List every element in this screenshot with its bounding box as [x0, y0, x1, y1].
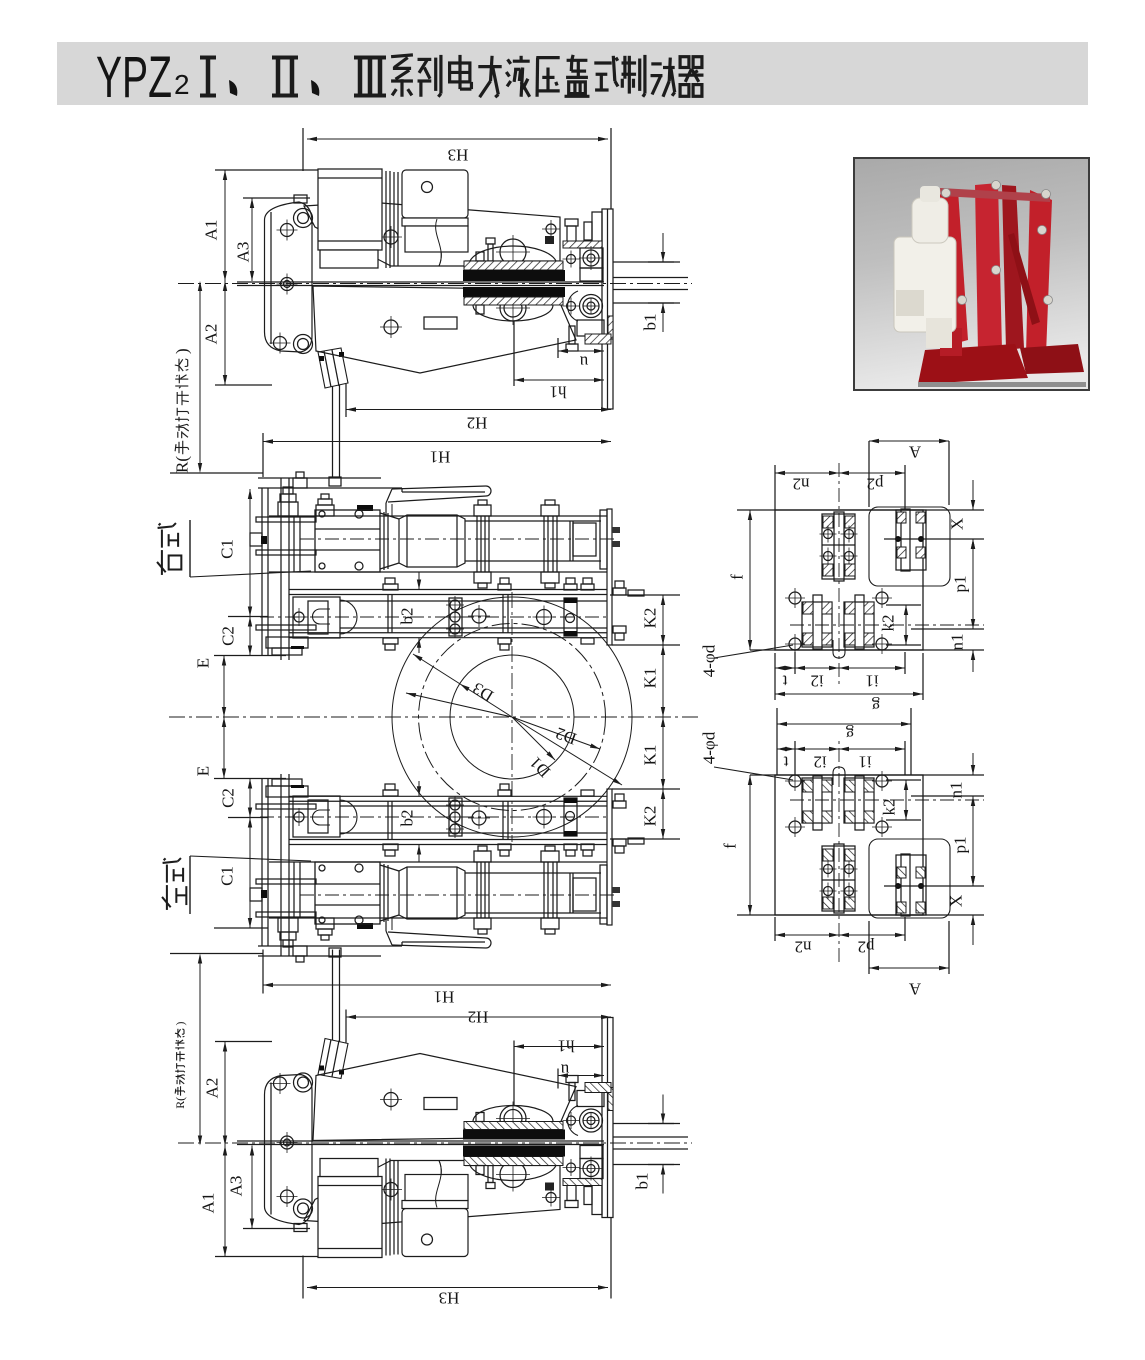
svg-text:b2: b2	[398, 810, 417, 827]
svg-text:n2: n2	[795, 938, 812, 957]
svg-text:A2: A2	[203, 1078, 222, 1099]
svg-text:A3: A3	[234, 242, 253, 263]
svg-text:H2: H2	[467, 414, 488, 433]
svg-text:K2: K2	[641, 806, 660, 827]
svg-text:A2: A2	[202, 324, 221, 345]
svg-text:H3: H3	[439, 1289, 460, 1308]
svg-text:X: X	[948, 518, 967, 530]
svg-text:p2: p2	[867, 475, 884, 494]
svg-text:R(: R(	[173, 1097, 187, 1109]
svg-text:R(: R(	[173, 456, 192, 473]
svg-text:YPZ: YPZ	[96, 45, 172, 110]
svg-text:n2: n2	[793, 475, 810, 494]
svg-text:H2: H2	[468, 1008, 489, 1027]
svg-text:b1: b1	[633, 1173, 652, 1190]
svg-text:i2: i2	[810, 672, 823, 691]
svg-text:p1: p1	[951, 576, 970, 593]
svg-text:E: E	[194, 766, 213, 776]
svg-text:f: f	[728, 574, 747, 580]
svg-text:k2: k2	[879, 615, 898, 632]
svg-text:C1: C1	[218, 539, 237, 559]
svg-text:C1: C1	[218, 866, 237, 886]
svg-text:i1: i1	[858, 753, 871, 772]
svg-text:K2: K2	[641, 608, 660, 629]
svg-text:g: g	[845, 725, 854, 744]
svg-text:A: A	[908, 980, 921, 999]
svg-text:H3: H3	[448, 146, 469, 165]
svg-text:t: t	[783, 753, 788, 772]
svg-text:u: u	[579, 353, 588, 372]
svg-text:2: 2	[174, 69, 190, 100]
svg-text:p2: p2	[858, 938, 875, 957]
svg-text:K1: K1	[641, 745, 660, 766]
svg-text:4-φd: 4-φd	[700, 731, 719, 764]
svg-text:k2: k2	[880, 799, 899, 816]
svg-text:b1: b1	[641, 314, 660, 331]
svg-text:n1: n1	[948, 634, 967, 651]
svg-text:H1: H1	[434, 988, 455, 1007]
svg-text:): )	[173, 1022, 187, 1026]
svg-text:X: X	[947, 895, 966, 907]
svg-text:A3: A3	[227, 1176, 246, 1197]
svg-text:i1: i1	[865, 672, 878, 691]
svg-text:h1: h1	[558, 1037, 575, 1056]
svg-text:g: g	[871, 697, 880, 716]
svg-text:A1: A1	[199, 1193, 218, 1214]
svg-text:K1: K1	[641, 668, 660, 689]
svg-text:i2: i2	[813, 753, 826, 772]
svg-text:u: u	[560, 1061, 569, 1080]
svg-text:t: t	[782, 672, 787, 691]
svg-text:b2: b2	[398, 608, 417, 625]
svg-text:p1: p1	[951, 837, 970, 854]
svg-text:C2: C2	[219, 788, 238, 808]
svg-text:n1: n1	[947, 782, 966, 799]
svg-text:E: E	[194, 658, 213, 668]
svg-text:): )	[173, 348, 192, 354]
svg-text:A: A	[908, 443, 921, 462]
svg-text:f: f	[721, 843, 740, 849]
svg-text:4-φd: 4-φd	[700, 644, 719, 677]
svg-text:H1: H1	[430, 448, 451, 467]
svg-text:A1: A1	[202, 220, 221, 241]
svg-text:h1: h1	[550, 383, 567, 402]
svg-text:C2: C2	[219, 626, 238, 646]
